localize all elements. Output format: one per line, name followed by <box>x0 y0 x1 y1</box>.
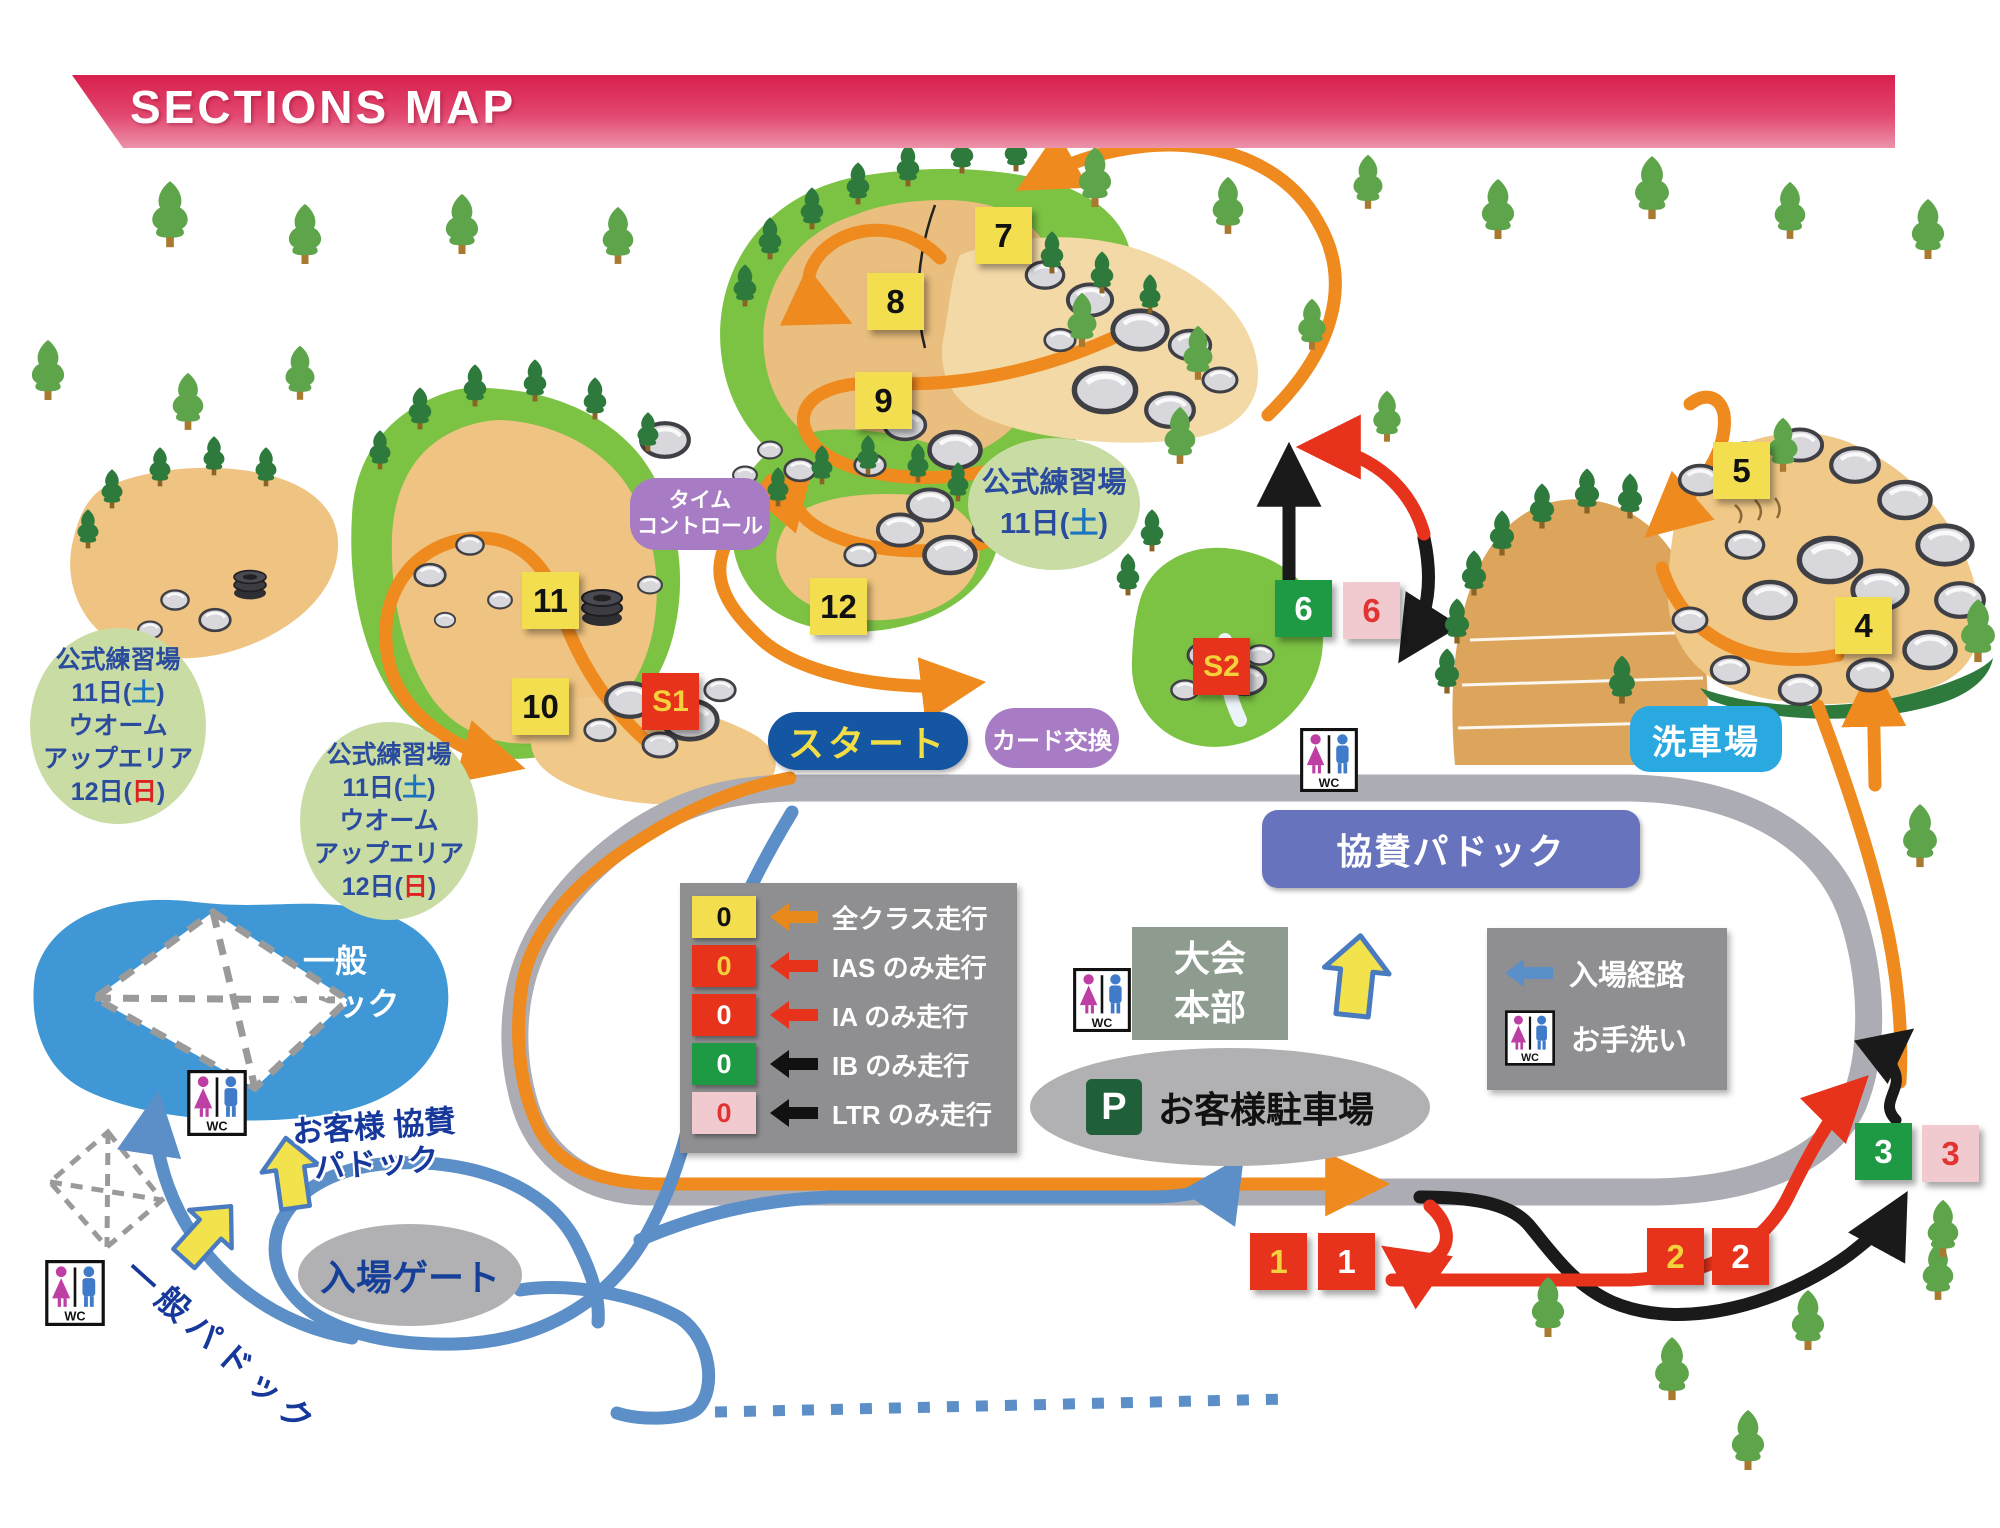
section-marker-12: 12 <box>810 578 867 635</box>
legend-row-all-class: 0 全クラス走行 <box>692 896 1005 938</box>
section-marker-11: 11 <box>522 572 579 629</box>
wc-icon <box>45 1260 105 1326</box>
practice-area-label-top: 公式練習場 11日(土) <box>968 438 1140 570</box>
ias-box: 0 <box>692 945 756 987</box>
time-control-label: タイムコントロール <box>630 478 770 550</box>
red-arrow-icon <box>770 1009 818 1021</box>
section-marker-2-ias: 2 <box>1647 1228 1704 1285</box>
practice-warmup-area-label-center: 公式練習場 11日(土) ウオーム アップエリア 12日(日) <box>300 722 478 920</box>
wc-icon <box>1505 1010 1555 1066</box>
section-marker-6-ltr: 6 <box>1343 582 1400 639</box>
wash-area-label: 洗車場 <box>1630 706 1782 772</box>
card-exchange-label: カード交換 <box>985 708 1119 768</box>
ib-box: 0 <box>692 1043 756 1085</box>
event-hq-label: 大会本部 <box>1132 927 1288 1040</box>
ltr-box: 0 <box>692 1092 756 1134</box>
all-class-box: 0 <box>692 896 756 938</box>
section-marker-3-ltr: 3 <box>1922 1125 1979 1182</box>
section-marker-8: 8 <box>867 273 924 330</box>
visitor-parking-label: P お客様駐車場 <box>1030 1048 1430 1166</box>
section-marker-10: 10 <box>512 678 569 735</box>
section-marker-2-ia: 2 <box>1712 1228 1769 1285</box>
legend-row-ia: 0 IA のみ走行 <box>692 994 1005 1036</box>
sections-map: WC SECTIONS MAP 公式練習場 11日(土) ウオーム アップエリア… <box>0 0 2000 1528</box>
section-marker-1-ia: 1 <box>1318 1233 1375 1290</box>
parking-icon: P <box>1086 1079 1142 1135</box>
orange-arrow-icon <box>770 911 818 923</box>
section-marker-6-ib: 6 <box>1275 580 1332 637</box>
start-label: スタート <box>768 712 968 770</box>
customer-sponsor-paddock-label: お客様 協賛パドック <box>268 1101 483 1190</box>
entrance-gate-label: 入場ゲート <box>298 1224 522 1326</box>
section-marker-s1: S1 <box>642 673 699 730</box>
legend-row-ias: 0 IAS のみ走行 <box>692 945 1005 987</box>
sponsor-paddock-label: 協賛パドック <box>1262 810 1640 888</box>
ia-box: 0 <box>692 994 756 1036</box>
black-arrow-icon <box>770 1058 818 1070</box>
legend-row-entry-route: 入場経路 <box>1505 952 1727 994</box>
wc-icon <box>1300 728 1358 792</box>
section-marker-1-ias: 1 <box>1250 1233 1307 1290</box>
class-legend: 0 全クラス走行 0 IAS のみ走行 0 IA のみ走行 0 IB のみ走行 … <box>680 883 1017 1153</box>
legend-row-ib: 0 IB のみ走行 <box>692 1043 1005 1085</box>
legend-row-ltr: 0 LTR のみ走行 <box>692 1092 1005 1134</box>
facility-legend: 入場経路 お手洗い <box>1487 928 1727 1090</box>
general-paddock-lake-label: 一般パドック <box>215 940 455 1026</box>
wc-icon <box>1073 968 1131 1032</box>
wc-icon <box>187 1070 247 1136</box>
legend-row-restroom: お手洗い <box>1505 1010 1727 1066</box>
section-marker-9: 9 <box>855 372 912 429</box>
section-marker-s2: S2 <box>1193 638 1250 695</box>
up-arrow-icon <box>1320 932 1393 1018</box>
section-marker-3-ib: 3 <box>1855 1123 1912 1180</box>
section-marker-5: 5 <box>1713 442 1770 499</box>
page-title: SECTIONS MAP <box>130 80 516 134</box>
section-marker-7: 7 <box>975 207 1032 264</box>
blue-arrow-icon <box>1505 967 1553 979</box>
section-marker-4: 4 <box>1835 597 1892 654</box>
practice-warmup-area-label-left: 公式練習場 11日(土) ウオーム アップエリア 12日(日) <box>30 628 206 824</box>
black-arrow-icon <box>770 1107 818 1119</box>
red-arrow-icon <box>770 960 818 972</box>
